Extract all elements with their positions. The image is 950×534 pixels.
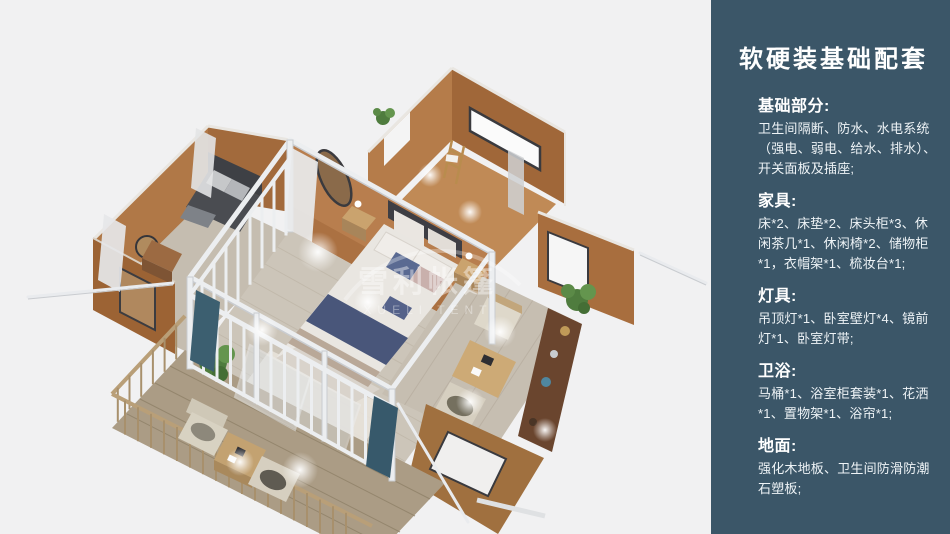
section-heading: 灯具: (758, 288, 940, 306)
floorplan-render: 雪利帐篷 XUELI TENT (0, 0, 711, 534)
spec-section-lighting: 灯具: 吊顶灯*1、卧室壁灯*4、镜前灯*1、卧室灯带; (758, 288, 940, 349)
sidebar-title: 软硬装基础配套 (739, 46, 940, 74)
section-body: 床*2、床垫*2、床头柜*3、休闲茶几*1、休闲椅*2、储物柜*1，衣帽架*1、… (758, 214, 940, 274)
section-body: 卫生间隔断、防水、水电系统（强电、弱电、给水、排水）、开关面板及插座; (758, 119, 940, 179)
decor-basket (560, 326, 570, 336)
watermark-en: XUELI TENT (363, 303, 492, 317)
watermark-cn: 雪利帐篷 (358, 266, 498, 299)
spec-section-furniture: 家具: 床*2、床垫*2、床头柜*3、休闲茶几*1、休闲椅*2、储物柜*1，衣帽… (758, 193, 940, 274)
spec-sections: 基础部分: 卫生间隔断、防水、水电系统（强电、弱电、给水、排水）、开关面板及插座… (758, 98, 940, 499)
section-heading: 卫浴: (758, 363, 940, 381)
section-body: 强化木地板、卫生间防滑防潮石塑板; (758, 459, 940, 499)
section-heading: 地面: (758, 438, 940, 456)
floorplan-render-pane: 雪利帐篷 XUELI TENT (0, 0, 711, 534)
decor-plate (541, 377, 551, 387)
section-heading: 基础部分: (758, 98, 940, 116)
curtain-gray (508, 150, 524, 215)
spec-section-flooring: 地面: 强化木地板、卫生间防滑防潮石塑板; (758, 438, 940, 499)
section-body: 吊顶灯*1、卧室壁灯*4、镜前灯*1、卧室灯带; (758, 309, 940, 349)
info-sidebar: 软硬装基础配套 基础部分: 卫生间隔断、防水、水电系统（强电、弱电、给水、排水）… (711, 0, 950, 534)
section-heading: 家具: (758, 193, 940, 211)
slide: 雪利帐篷 XUELI TENT 软硬装基础配套 基础部分: 卫生间隔断、防水、水… (0, 0, 950, 534)
section-body: 马桶*1、浴室柜套装*1、花洒*1、置物架*1、浴帘*1; (758, 384, 940, 424)
decor-plate (550, 350, 558, 358)
spec-section-bathroom: 卫浴: 马桶*1、浴室柜套装*1、花洒*1、置物架*1、浴帘*1; (758, 363, 940, 424)
spec-section-basics: 基础部分: 卫生间隔断、防水、水电系统（强电、弱电、给水、排水）、开关面板及插座… (758, 98, 940, 179)
